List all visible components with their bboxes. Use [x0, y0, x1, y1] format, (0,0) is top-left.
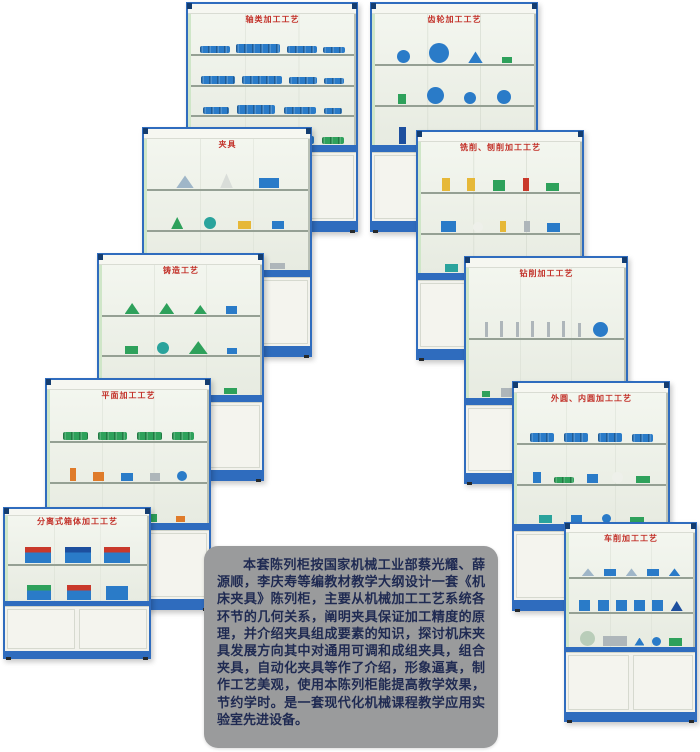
cabinet-glass-display: 齿轮加工工艺 — [372, 14, 536, 145]
model-item-rect — [500, 321, 503, 337]
cabinet-top-panel — [514, 383, 668, 393]
model-item-rect — [500, 221, 506, 232]
cabinet-title: 铣削、刨削加工工艺 — [421, 142, 580, 154]
model-item-circle — [464, 92, 476, 104]
model-item-shaft — [324, 108, 342, 114]
description-panel: 本套陈列柜按国家机械工业部蔡光耀、薛源顺，李庆寿等编教材教学大纲设计一套《机床夹… — [204, 546, 498, 748]
cabinet-title: 轴类加工工艺 — [191, 14, 354, 26]
model-item-rect — [121, 473, 133, 481]
model-item-rect — [647, 569, 659, 576]
model-item-shaft — [322, 137, 344, 144]
model-item-rect — [70, 468, 76, 481]
cabinet-shelf — [191, 87, 354, 117]
model-item-shaft — [137, 432, 162, 440]
cabinet-glass-display: 钻削加工工艺 — [466, 268, 626, 398]
model-item-tri — [669, 568, 681, 576]
cabinet-top-panel — [144, 129, 310, 139]
model-item-rect — [270, 263, 285, 269]
cabinet-shelf — [50, 402, 207, 443]
cabinet-shelf — [8, 566, 147, 602]
cabinet-top-panel — [47, 380, 209, 390]
cabinet-glass-display: 分离式箱体加工工艺 — [5, 516, 149, 601]
cabinet-shelf — [191, 56, 354, 86]
display-cabinet-split-housing-machining: 分离式箱体加工工艺 — [3, 507, 151, 659]
model-item-rect — [546, 183, 559, 191]
model-item-rect — [547, 223, 560, 232]
display-cabinet-turning-machining: 车削加工工艺 — [564, 522, 697, 722]
model-item-rect — [616, 600, 627, 611]
model-item-shaft — [530, 433, 554, 442]
model-item-rect — [533, 472, 541, 483]
model-item-tri — [176, 175, 194, 188]
model-item-circle — [652, 637, 661, 646]
model-item-shaft — [554, 477, 574, 483]
model-item-rect — [399, 127, 406, 144]
model-item-rect — [125, 346, 138, 354]
model-item-rect — [398, 94, 406, 104]
model-item-rect — [547, 322, 550, 337]
model-item-rect — [259, 178, 279, 188]
model-item-shaft — [63, 432, 88, 440]
model-item-tri — [171, 217, 183, 229]
cabinet-shelf — [569, 579, 693, 614]
cabinet-shelf — [147, 151, 308, 191]
model-item-tri — [125, 303, 140, 314]
cabinet-shelf — [50, 443, 207, 484]
cabinet-title: 分离式箱体加工工艺 — [8, 516, 147, 528]
model-item-shaft — [632, 434, 653, 442]
model-item-housing — [27, 585, 51, 600]
model-item-rect — [531, 321, 534, 337]
model-item-tri — [194, 305, 207, 314]
cabinet-title: 车削加工工艺 — [569, 533, 693, 545]
model-item-rect — [227, 348, 237, 354]
model-item-rect — [636, 476, 650, 483]
cabinet-title: 齿轮加工工艺 — [375, 14, 534, 26]
model-item-tri — [582, 568, 595, 576]
model-item-rect — [224, 388, 237, 394]
model-item-housing — [65, 547, 91, 563]
model-item-rect — [598, 600, 609, 611]
cabinet-title: 外圆、内圆加工工艺 — [517, 393, 666, 405]
model-item-circle — [204, 217, 216, 229]
model-item-rect — [603, 636, 627, 646]
model-item-rect — [587, 474, 598, 483]
cabinet-shelf — [421, 194, 580, 234]
cabinet-shelf — [375, 26, 534, 66]
model-item-circle — [580, 631, 595, 646]
model-item-circle — [427, 87, 444, 104]
model-item-circle — [157, 342, 169, 354]
model-item-rect — [445, 264, 458, 272]
model-item-rect — [467, 178, 475, 191]
model-item-circle — [612, 472, 623, 483]
cupboard-door-left — [7, 609, 75, 649]
cupboard-door-right — [79, 609, 147, 649]
model-item-shaft — [237, 105, 275, 114]
model-item-rect — [176, 516, 185, 522]
description-text: 本套陈列柜按国家机械工业部蔡光耀、薛源顺，李庆寿等编教材教学大纲设计一套《机床夹… — [217, 556, 485, 728]
cabinet-shelf — [569, 545, 693, 580]
model-item-shaft — [98, 432, 127, 440]
model-item-tri — [468, 51, 483, 63]
model-item-rect — [493, 180, 505, 191]
model-item-rect — [524, 221, 530, 232]
cupboard-door-right — [633, 655, 694, 710]
model-item-shaft — [236, 44, 280, 53]
model-item-shaft — [284, 107, 316, 114]
cabinet-top-panel — [5, 509, 149, 516]
photo-canvas: 本套陈列柜按国家机械工业部蔡光耀、薛源顺，李庆寿等编教材教学大纲设计一套《机床夹… — [0, 0, 700, 752]
model-item-rect — [578, 323, 581, 337]
model-item-rect — [272, 221, 284, 229]
model-item-shaft — [201, 76, 235, 84]
cabinet-shelf — [375, 66, 534, 106]
model-item-shaft — [323, 47, 345, 53]
cabinet-shelf — [8, 528, 147, 566]
cabinet-shelf — [517, 405, 666, 445]
model-item-shaft — [598, 433, 622, 442]
model-item-circle — [397, 50, 410, 63]
cabinet-top-panel — [188, 4, 356, 14]
model-item-rect — [652, 600, 663, 611]
cabinet-shelf — [102, 277, 260, 317]
cabinet-top-panel — [99, 255, 262, 265]
model-item-rect — [579, 600, 590, 611]
model-item-circle — [177, 471, 187, 481]
cabinet-shelf — [102, 317, 260, 357]
model-item-housing — [106, 586, 128, 600]
model-item-rect — [502, 57, 512, 63]
cabinet-shelf — [569, 614, 693, 647]
model-item-rect — [442, 178, 450, 191]
model-item-rect — [604, 569, 616, 576]
model-item-housing — [25, 547, 51, 563]
cabinet-glass-display: 外圆、内圆加工工艺 — [514, 393, 668, 524]
model-item-housing — [104, 547, 130, 563]
model-item-shaft — [287, 46, 317, 53]
cabinet-glass-display: 轴类加工工艺 — [188, 14, 356, 145]
cabinet-glass-display: 铸造工艺 — [99, 265, 262, 395]
cabinet-title: 夹具 — [147, 139, 308, 151]
model-item-rect — [634, 600, 645, 611]
model-item-rect — [482, 391, 490, 397]
cabinet-glass-display: 平面加工工艺 — [47, 390, 209, 523]
cabinet-cupboard — [566, 652, 695, 712]
model-item-tri — [159, 303, 174, 314]
model-item-rect — [523, 178, 529, 191]
model-item-tri — [671, 601, 683, 611]
model-item-circle — [429, 43, 449, 63]
model-item-tri — [189, 341, 208, 354]
model-item-rect — [516, 322, 519, 337]
cabinet-glass-display: 铣削、刨削加工工艺 — [418, 142, 582, 273]
cabinet-shelf — [421, 154, 580, 194]
model-item-circle — [497, 90, 511, 104]
model-item-shaft — [324, 78, 344, 84]
cabinet-top-panel — [566, 524, 695, 533]
model-item-shaft — [200, 46, 230, 53]
model-item-tri — [626, 568, 638, 576]
cabinet-top-panel — [466, 258, 626, 268]
model-item-rect — [238, 221, 251, 229]
cabinet-shelf — [469, 280, 624, 340]
model-item-rect — [669, 638, 682, 646]
cabinet-glass-display: 车削加工工艺 — [566, 533, 695, 647]
cabinet-title: 平面加工工艺 — [50, 390, 207, 402]
model-item-shaft — [242, 76, 282, 84]
model-item-shaft — [289, 77, 317, 84]
model-item-housing — [67, 585, 91, 600]
cabinet-shelf — [517, 445, 666, 485]
model-item-rect — [485, 322, 488, 337]
model-item-circle — [593, 322, 608, 337]
model-item-rect — [226, 306, 237, 314]
cabinet-cupboard — [5, 606, 149, 651]
cabinet-base — [5, 651, 149, 657]
model-item-tri — [634, 638, 644, 646]
cabinet-title: 钻削加工工艺 — [469, 268, 624, 280]
model-item-rect — [562, 321, 565, 337]
cabinet-shelf — [147, 191, 308, 231]
cabinet-top-panel — [418, 132, 582, 142]
cabinet-base — [566, 712, 695, 720]
cabinet-glass-display: 夹具 — [144, 139, 310, 270]
cabinet-shelf — [517, 486, 666, 524]
model-item-rect — [150, 473, 160, 481]
model-item-tri — [220, 173, 233, 188]
model-item-rect — [93, 472, 104, 481]
cabinet-top-panel — [372, 4, 536, 14]
model-item-rect — [539, 515, 552, 523]
model-item-shaft — [203, 107, 229, 114]
model-item-circle — [473, 222, 483, 232]
model-item-rect — [441, 221, 456, 232]
model-item-shaft — [172, 432, 194, 440]
cupboard-door-left — [568, 655, 629, 710]
cabinet-shelf — [191, 26, 354, 56]
model-item-shaft — [564, 433, 588, 442]
cabinet-title: 铸造工艺 — [102, 265, 260, 277]
